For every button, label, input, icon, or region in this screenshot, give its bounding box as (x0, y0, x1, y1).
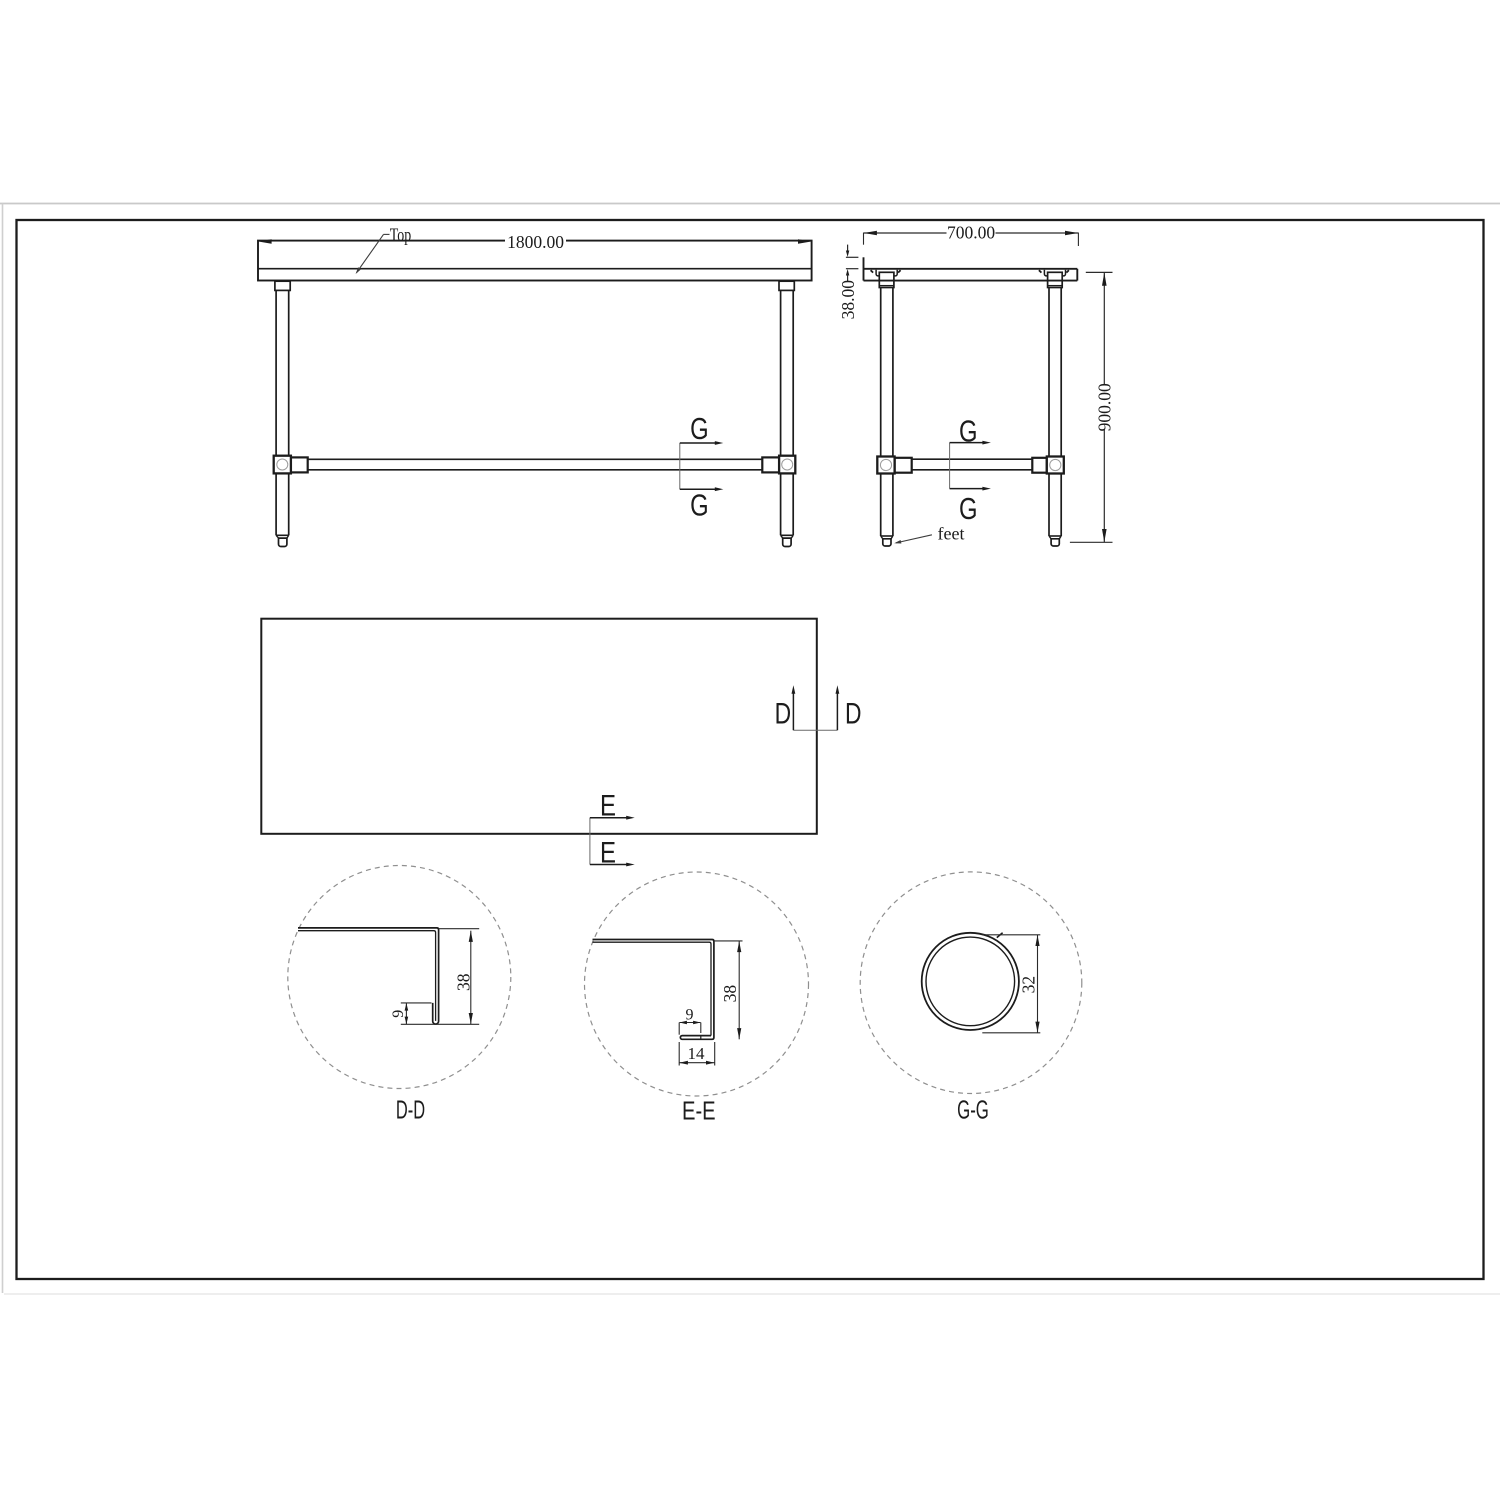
svg-text:feet: feet (938, 523, 965, 543)
svg-text:38.00: 38.00 (838, 280, 858, 320)
svg-text:G: G (690, 488, 709, 522)
svg-text:D-D: D-D (396, 1095, 425, 1125)
svg-text:9: 9 (390, 1010, 407, 1018)
svg-text:G: G (959, 414, 978, 448)
svg-text:E-E: E-E (682, 1096, 716, 1126)
svg-text:G-G: G-G (957, 1095, 989, 1125)
svg-text:D: D (845, 698, 862, 731)
svg-text:E: E (600, 789, 616, 822)
svg-text:38: 38 (720, 985, 740, 1003)
svg-text:700.00: 700.00 (947, 223, 995, 243)
svg-text:32: 32 (1018, 976, 1038, 994)
svg-text:1800.00: 1800.00 (507, 232, 564, 252)
svg-text:G: G (959, 492, 978, 526)
svg-text:38: 38 (454, 973, 474, 991)
svg-text:D: D (775, 698, 792, 731)
svg-text:G: G (690, 412, 709, 446)
svg-text:9: 9 (686, 1007, 694, 1024)
svg-text:Top: Top (390, 225, 412, 246)
svg-text:900.00: 900.00 (1095, 383, 1115, 431)
svg-text:E: E (600, 836, 616, 869)
svg-text:14: 14 (688, 1044, 706, 1063)
